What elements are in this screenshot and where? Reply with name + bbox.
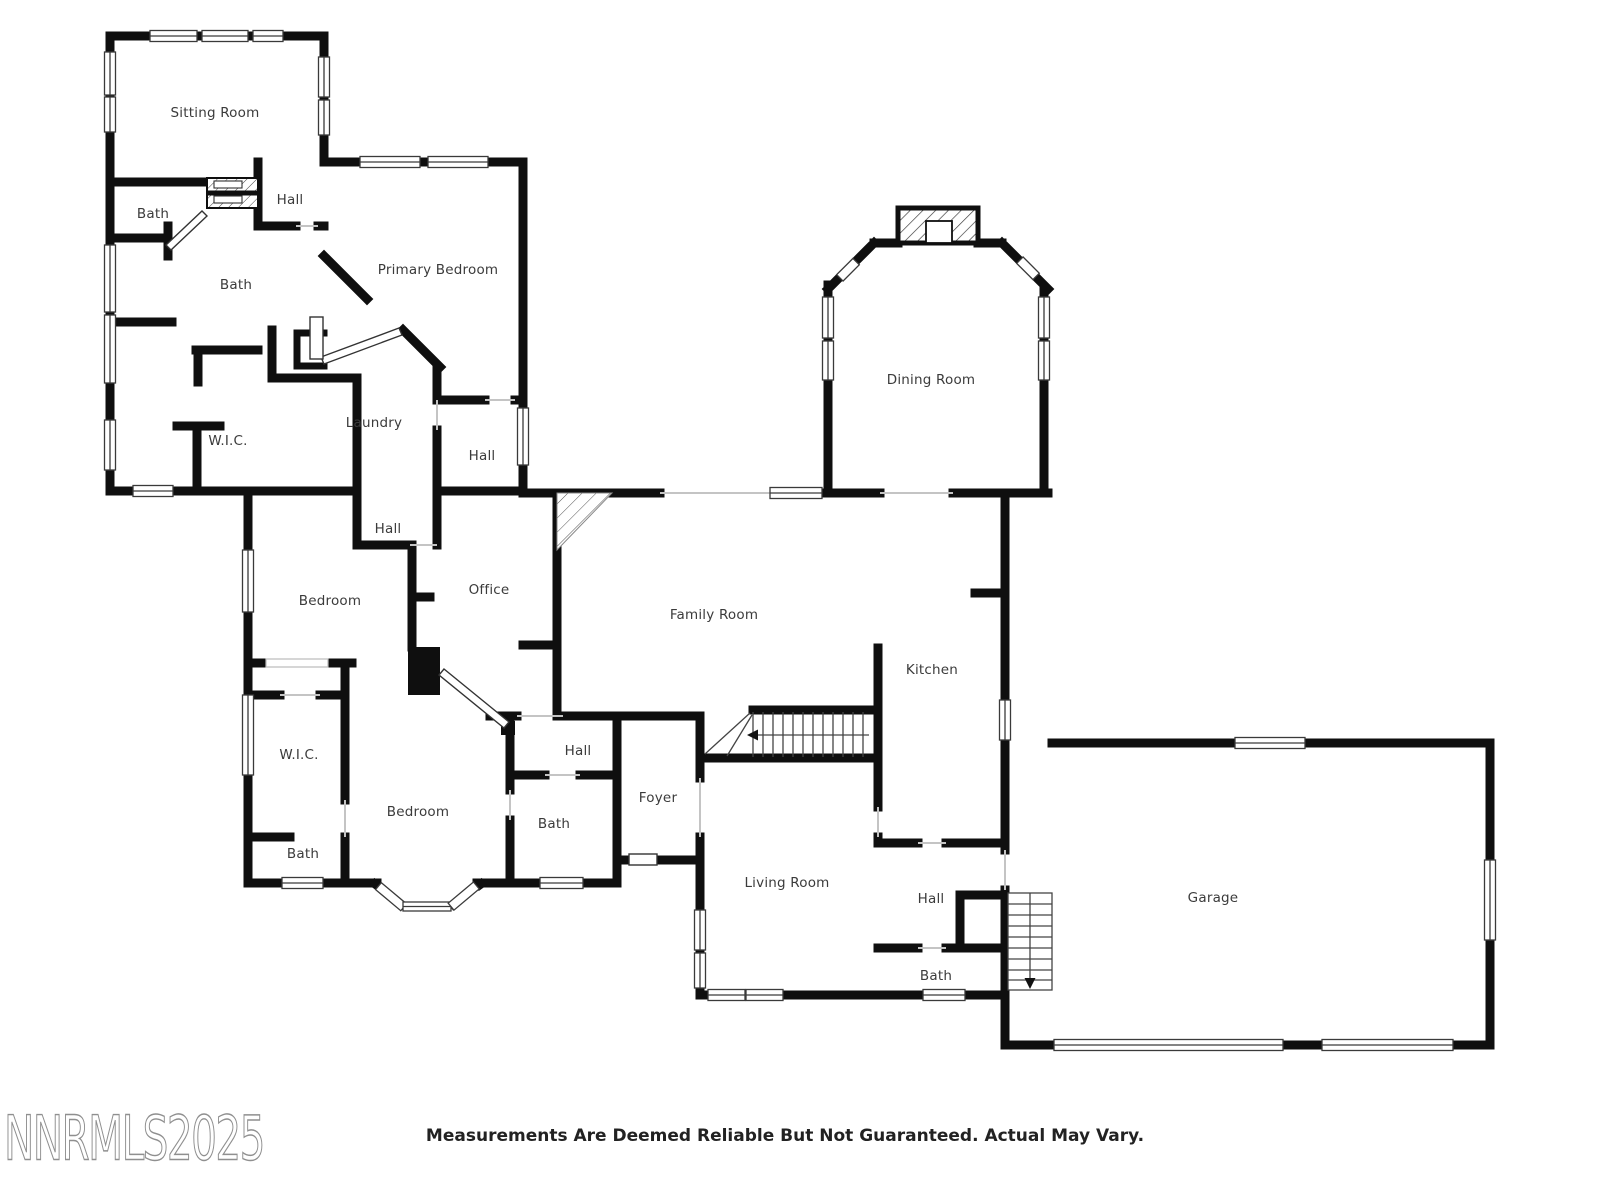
room-label-hall-lower: Hall xyxy=(565,743,592,759)
room-label-bath-lower-left: Bath xyxy=(287,846,319,862)
disclaimer-text: Measurements Are Deemed Reliable But Not… xyxy=(426,1126,1144,1146)
room-label-hall-garage: Hall xyxy=(918,891,945,907)
room-label-bedroom-mid: Bedroom xyxy=(299,593,361,609)
room-label-wic-lower: W.I.C. xyxy=(279,747,318,763)
winder-stairs-hatch xyxy=(557,493,612,550)
windows xyxy=(105,31,1496,1051)
walls xyxy=(110,36,1490,1045)
doors xyxy=(166,211,657,865)
room-label-bath-garage: Bath xyxy=(920,968,952,984)
room-label-family-room: Family Room xyxy=(670,607,758,623)
closet-shelves xyxy=(207,178,258,208)
mls-watermark: NNRMLS2025 xyxy=(4,1104,264,1175)
floor-plan-drawing xyxy=(0,0,1600,1200)
garage-doors xyxy=(1054,1040,1453,1051)
fireplace xyxy=(898,208,978,243)
room-label-office: Office xyxy=(469,582,510,598)
dining-corner-windows xyxy=(837,257,1040,281)
room-label-primary-bedroom: Primary Bedroom xyxy=(378,262,499,278)
bedroom-door-leaf xyxy=(439,669,509,728)
stairs-garage xyxy=(1008,893,1052,990)
room-label-hall-upper: Hall xyxy=(277,192,304,208)
bay-window xyxy=(376,882,480,911)
room-label-foyer: Foyer xyxy=(639,790,677,806)
front-door xyxy=(629,854,657,865)
room-label-kitchen: Kitchen xyxy=(906,662,958,678)
room-label-hall-east: Hall xyxy=(469,448,496,464)
room-label-living-room: Living Room xyxy=(744,875,829,891)
bath-pocket-door xyxy=(310,317,323,359)
stairs-main xyxy=(705,712,869,757)
floor-plan-canvas: Sitting Room Bath Hall Bath Primary Bedr… xyxy=(0,0,1600,1200)
room-label-bath-lower-mid: Bath xyxy=(538,816,570,832)
room-label-bath-main: Bath xyxy=(220,277,252,293)
room-label-bedroom-lower: Bedroom xyxy=(387,804,449,820)
room-label-wic-upper: W.I.C. xyxy=(208,433,247,449)
primary-bedroom-door-leaf xyxy=(321,328,402,364)
room-label-hall-mid: Hall xyxy=(375,521,402,537)
room-label-bath-upper: Bath xyxy=(137,206,169,222)
chimney-block xyxy=(408,647,440,695)
room-label-dining-room: Dining Room xyxy=(887,372,976,388)
room-label-garage: Garage xyxy=(1188,890,1239,906)
room-label-sitting-room: Sitting Room xyxy=(171,105,260,121)
room-label-laundry: Laundry xyxy=(346,415,402,431)
